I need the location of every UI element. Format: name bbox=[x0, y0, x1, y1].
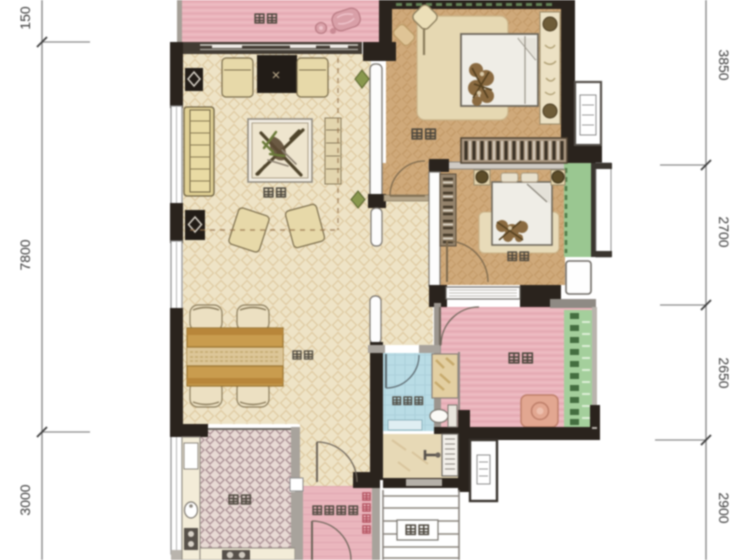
svg-text:3000: 3000 bbox=[17, 484, 33, 515]
svg-text:2650: 2650 bbox=[716, 357, 732, 388]
svg-text:7800: 7800 bbox=[17, 239, 33, 270]
svg-text:3850: 3850 bbox=[716, 49, 732, 80]
svg-text:150: 150 bbox=[17, 6, 33, 30]
svg-text:2900: 2900 bbox=[716, 492, 732, 523]
svg-text:2700: 2700 bbox=[716, 216, 732, 247]
